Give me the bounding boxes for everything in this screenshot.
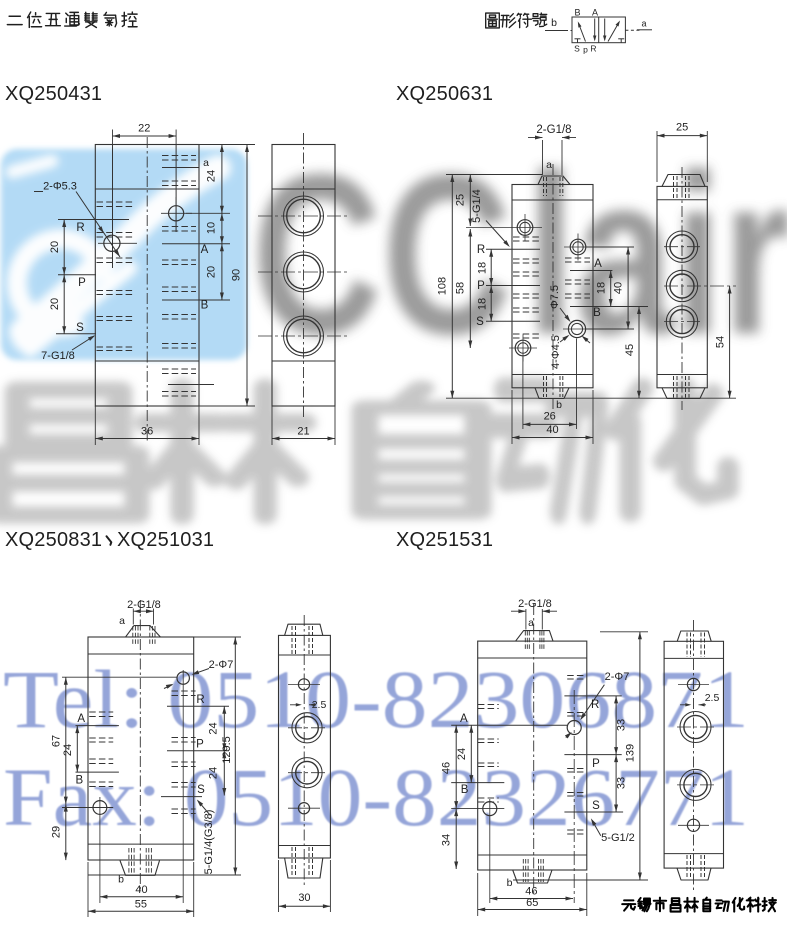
svg-text:P: P bbox=[592, 758, 600, 770]
svg-text:20: 20 bbox=[206, 266, 218, 278]
svg-text:18: 18 bbox=[477, 262, 489, 274]
svg-text:58: 58 bbox=[455, 282, 467, 294]
svg-text:21: 21 bbox=[297, 426, 309, 438]
svg-text:S: S bbox=[197, 784, 205, 796]
svg-text:b: b bbox=[118, 874, 124, 886]
svg-text:22: 22 bbox=[138, 123, 150, 135]
svg-text:XQ250631: XQ250631 bbox=[396, 83, 493, 105]
svg-text:54: 54 bbox=[715, 336, 727, 348]
svg-text:R: R bbox=[196, 694, 204, 706]
svg-text:24: 24 bbox=[208, 767, 220, 779]
svg-text:108: 108 bbox=[437, 277, 449, 295]
svg-text:A: A bbox=[201, 244, 209, 256]
svg-text:P: P bbox=[78, 277, 86, 289]
svg-text:CC: CC bbox=[252, 128, 512, 382]
svg-text:2-G1/8: 2-G1/8 bbox=[127, 599, 161, 611]
svg-text:XQ251031: XQ251031 bbox=[117, 529, 214, 551]
svg-text:24: 24 bbox=[456, 748, 468, 760]
svg-text:S: S bbox=[76, 322, 84, 334]
svg-text:46: 46 bbox=[525, 886, 537, 898]
svg-text:S: S bbox=[574, 44, 580, 54]
svg-text:XQ250831: XQ250831 bbox=[5, 529, 102, 551]
svg-text:90: 90 bbox=[231, 269, 243, 281]
svg-text:33: 33 bbox=[616, 719, 628, 731]
svg-text:a: a bbox=[546, 159, 552, 171]
svg-text:24: 24 bbox=[206, 170, 218, 182]
svg-text:29: 29 bbox=[51, 826, 63, 838]
svg-text:20: 20 bbox=[49, 298, 61, 310]
svg-text:24: 24 bbox=[62, 744, 74, 756]
svg-text:Fax: 0510-82326771: Fax: 0510-82326771 bbox=[3, 751, 749, 843]
svg-text:55: 55 bbox=[135, 899, 147, 911]
svg-text:4-Φ4.5: 4-Φ4.5 bbox=[550, 335, 562, 369]
svg-text:65: 65 bbox=[526, 897, 538, 909]
svg-text:S: S bbox=[476, 316, 484, 328]
svg-text:36: 36 bbox=[141, 426, 153, 438]
svg-text:45: 45 bbox=[624, 344, 636, 356]
svg-text:XQ250431: XQ250431 bbox=[5, 83, 102, 105]
svg-text:2-G1/8: 2-G1/8 bbox=[536, 124, 571, 136]
svg-text:b: b bbox=[507, 877, 513, 889]
svg-text:25: 25 bbox=[676, 122, 688, 134]
svg-text:2-Φ7: 2-Φ7 bbox=[605, 671, 630, 683]
svg-text:2.5: 2.5 bbox=[705, 692, 720, 704]
svg-text:24: 24 bbox=[208, 722, 220, 734]
svg-text:XQ251531: XQ251531 bbox=[396, 529, 493, 551]
svg-text:18: 18 bbox=[477, 298, 489, 310]
svg-text:P: P bbox=[196, 739, 204, 751]
svg-text:40: 40 bbox=[613, 282, 625, 294]
svg-text:P: P bbox=[477, 280, 485, 292]
svg-text:p: p bbox=[583, 45, 588, 55]
svg-text:B: B bbox=[461, 784, 469, 796]
svg-text:2-G1/8: 2-G1/8 bbox=[518, 598, 552, 610]
svg-text:B: B bbox=[593, 307, 601, 319]
svg-text:A: A bbox=[77, 713, 85, 725]
svg-text:20: 20 bbox=[49, 241, 61, 253]
svg-text:5-G1/2: 5-G1/2 bbox=[601, 832, 635, 844]
svg-text:a: a bbox=[119, 615, 125, 627]
svg-text:67: 67 bbox=[51, 735, 63, 747]
svg-text:b: b bbox=[551, 17, 557, 29]
svg-text:R: R bbox=[590, 44, 596, 54]
svg-text:2-Φ5.3: 2-Φ5.3 bbox=[43, 181, 77, 193]
svg-text:25: 25 bbox=[455, 194, 467, 206]
svg-text:10: 10 bbox=[206, 222, 218, 234]
svg-text:46: 46 bbox=[441, 762, 453, 774]
svg-text:139: 139 bbox=[625, 744, 637, 762]
svg-text:26: 26 bbox=[544, 411, 556, 423]
svg-text:a: a bbox=[528, 617, 534, 629]
svg-text:30: 30 bbox=[298, 892, 310, 904]
svg-text:B: B bbox=[201, 300, 209, 312]
svg-text:R: R bbox=[477, 244, 485, 256]
svg-text:129.5: 129.5 bbox=[221, 736, 233, 764]
svg-text:5-G1/4(G3/8): 5-G1/4(G3/8) bbox=[203, 810, 215, 875]
svg-text:5-G1/4: 5-G1/4 bbox=[471, 189, 483, 223]
svg-text:B: B bbox=[75, 775, 83, 787]
svg-text:7-G1/8: 7-G1/8 bbox=[41, 350, 75, 362]
svg-text:Φ7.5: Φ7.5 bbox=[549, 285, 561, 309]
svg-text:R: R bbox=[591, 699, 599, 711]
svg-text:b: b bbox=[556, 399, 562, 411]
svg-text:R: R bbox=[76, 222, 84, 234]
svg-text:2-Φ7: 2-Φ7 bbox=[209, 659, 234, 671]
svg-text:18: 18 bbox=[596, 282, 608, 294]
svg-text:40: 40 bbox=[546, 424, 558, 436]
svg-text:40: 40 bbox=[135, 884, 147, 896]
svg-text:34: 34 bbox=[441, 834, 453, 846]
svg-text:A: A bbox=[594, 258, 602, 270]
svg-text:Tel: 0510-82306871: Tel: 0510-82306871 bbox=[3, 653, 749, 745]
svg-text:A: A bbox=[592, 8, 598, 18]
svg-text:S: S bbox=[592, 800, 600, 812]
svg-text:B: B bbox=[574, 8, 580, 18]
svg-text:33: 33 bbox=[616, 777, 628, 789]
svg-text:a: a bbox=[203, 157, 209, 169]
svg-text:A: A bbox=[460, 713, 468, 725]
svg-text:a: a bbox=[641, 19, 646, 29]
